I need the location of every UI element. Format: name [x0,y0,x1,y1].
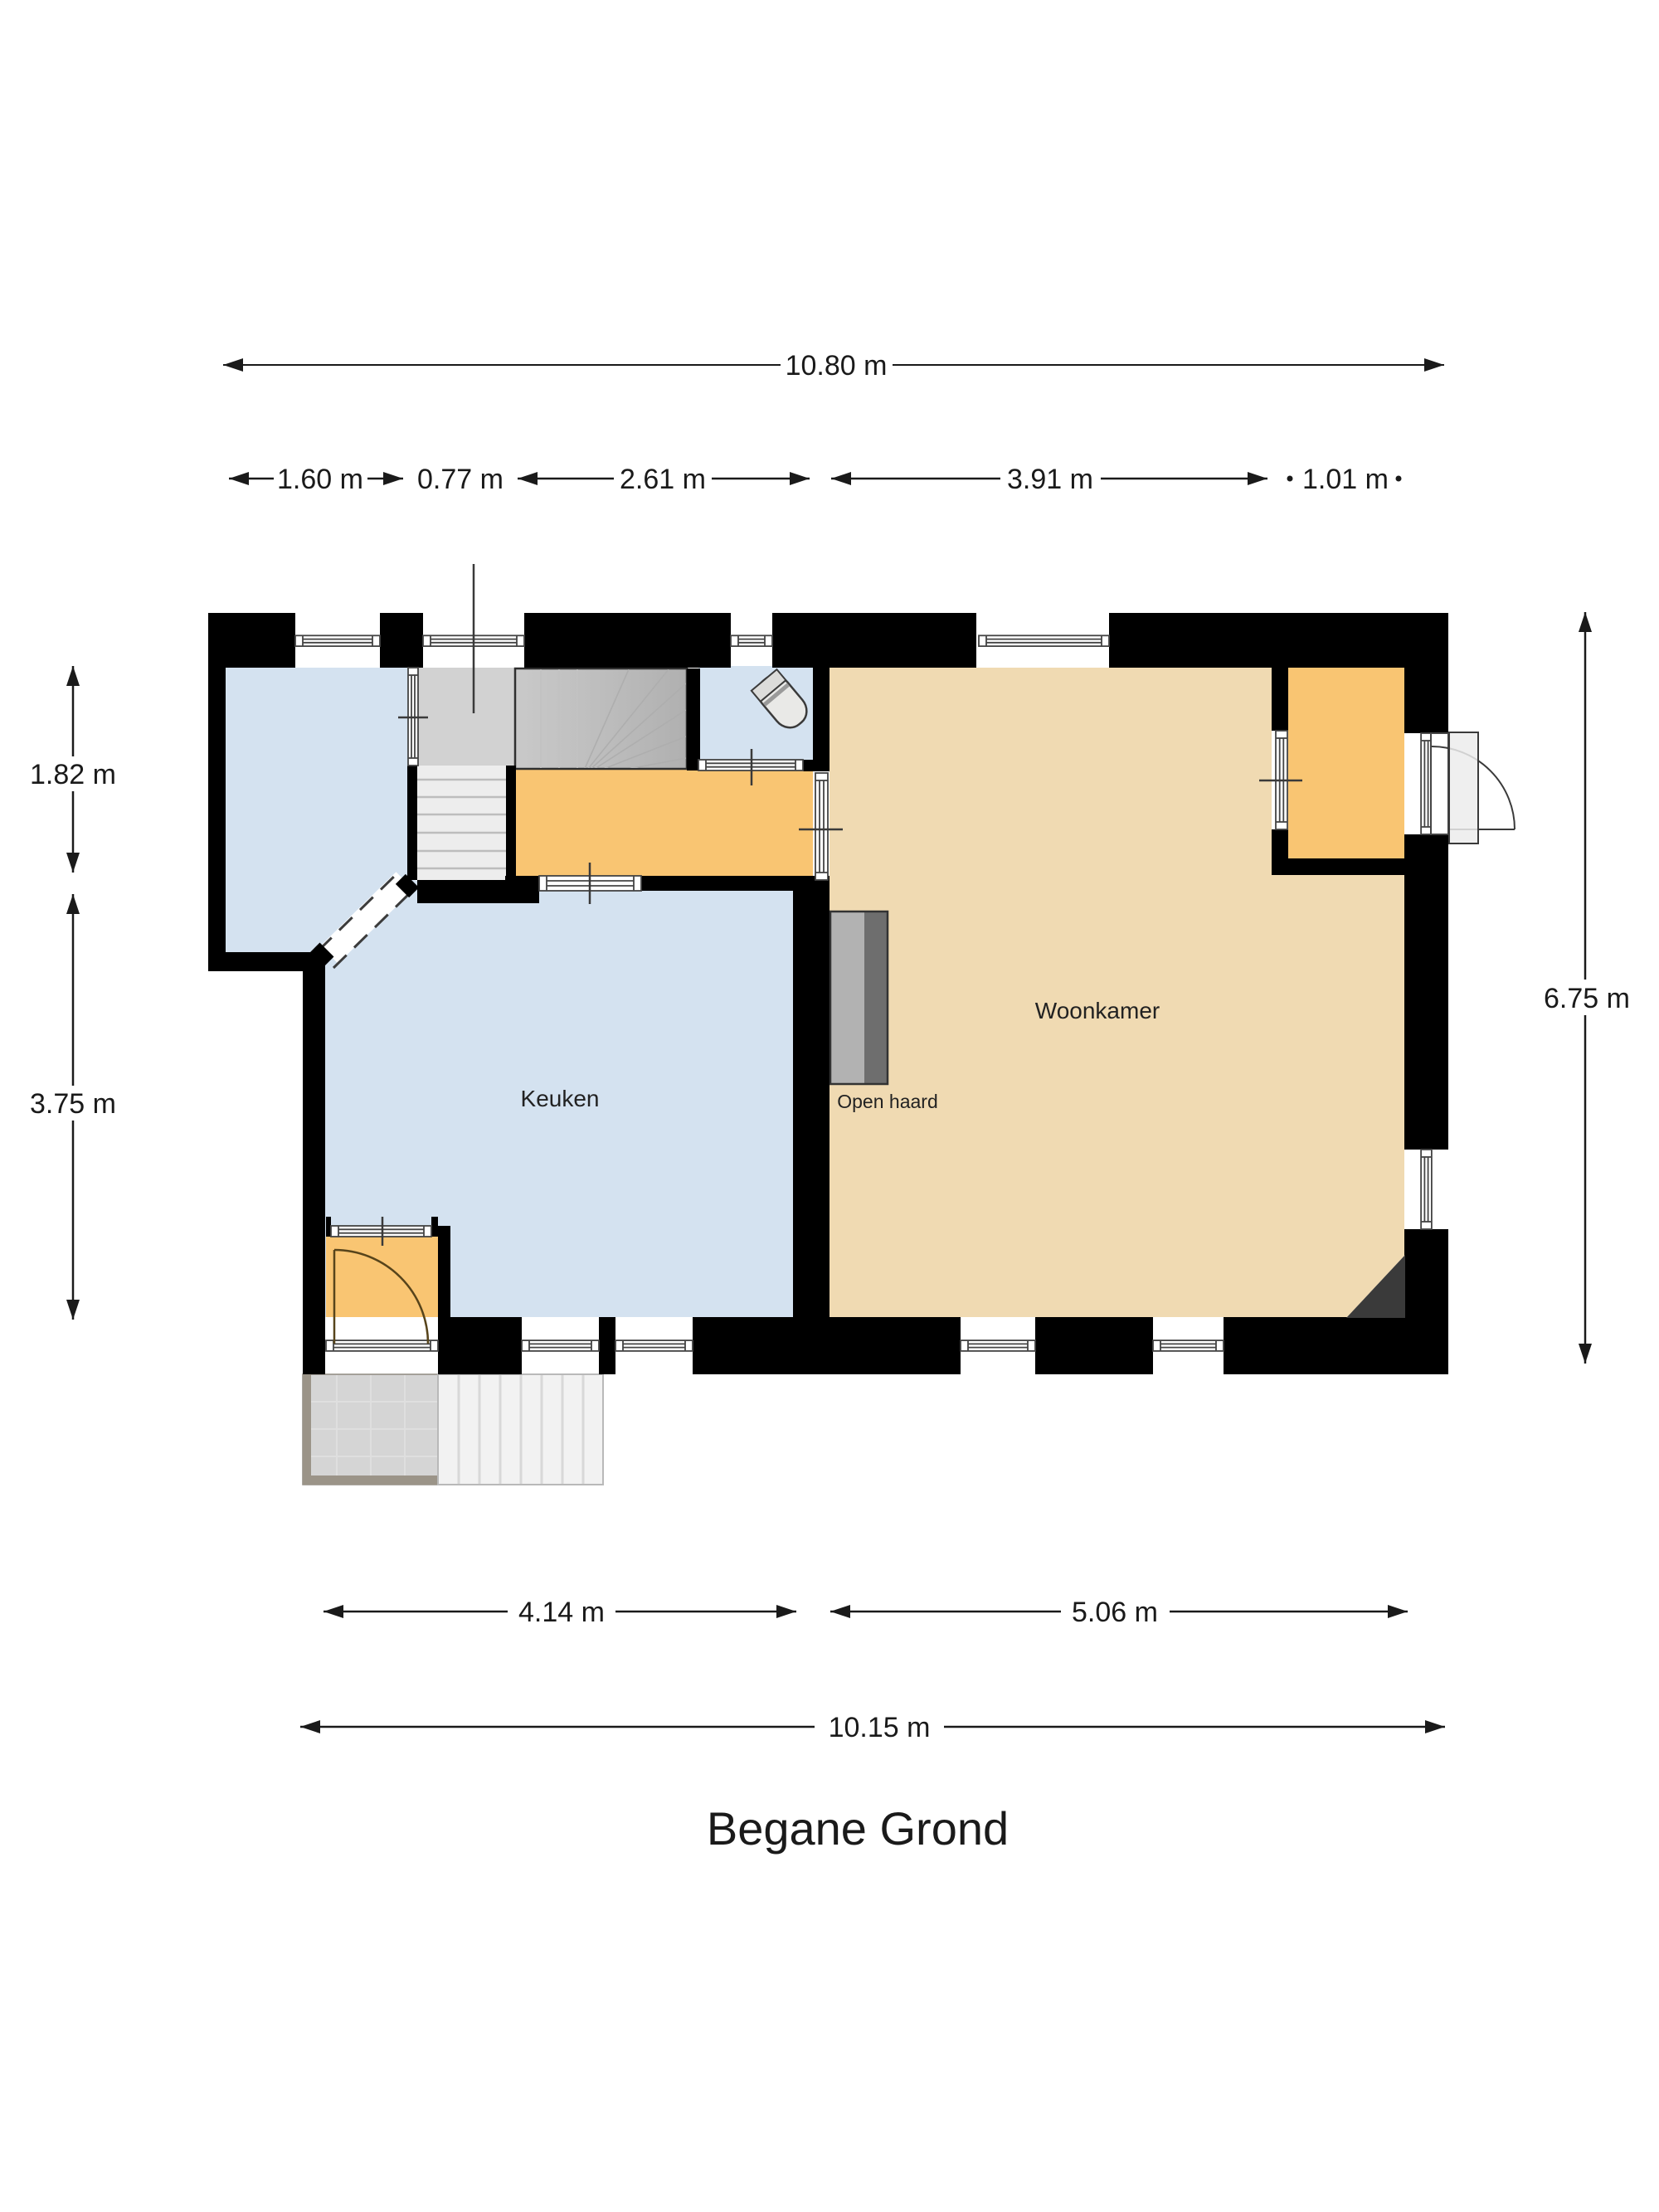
svg-text:Begane Grond: Begane Grond [707,1802,1009,1855]
svg-text:0.77 m: 0.77 m [417,464,504,495]
svg-text:Open haard: Open haard [837,1091,937,1112]
svg-text:3.91 m: 3.91 m [1007,464,1093,495]
svg-text:1.60 m: 1.60 m [277,464,363,495]
svg-text:1.01 m: 1.01 m [1302,464,1389,495]
svg-text:1.82 m: 1.82 m [30,759,116,790]
svg-text:2.61 m: 2.61 m [620,464,706,495]
svg-text:10.15 m: 10.15 m [829,1712,931,1743]
svg-text:3.75 m: 3.75 m [30,1088,116,1120]
svg-text:Woonkamer: Woonkamer [1035,998,1160,1023]
svg-text:10.80 m: 10.80 m [786,350,888,382]
svg-text:Keuken: Keuken [521,1086,600,1111]
svg-text:4.14 m: 4.14 m [518,1597,605,1628]
svg-text:5.06 m: 5.06 m [1072,1597,1158,1628]
svg-text:6.75 m: 6.75 m [1544,983,1630,1014]
